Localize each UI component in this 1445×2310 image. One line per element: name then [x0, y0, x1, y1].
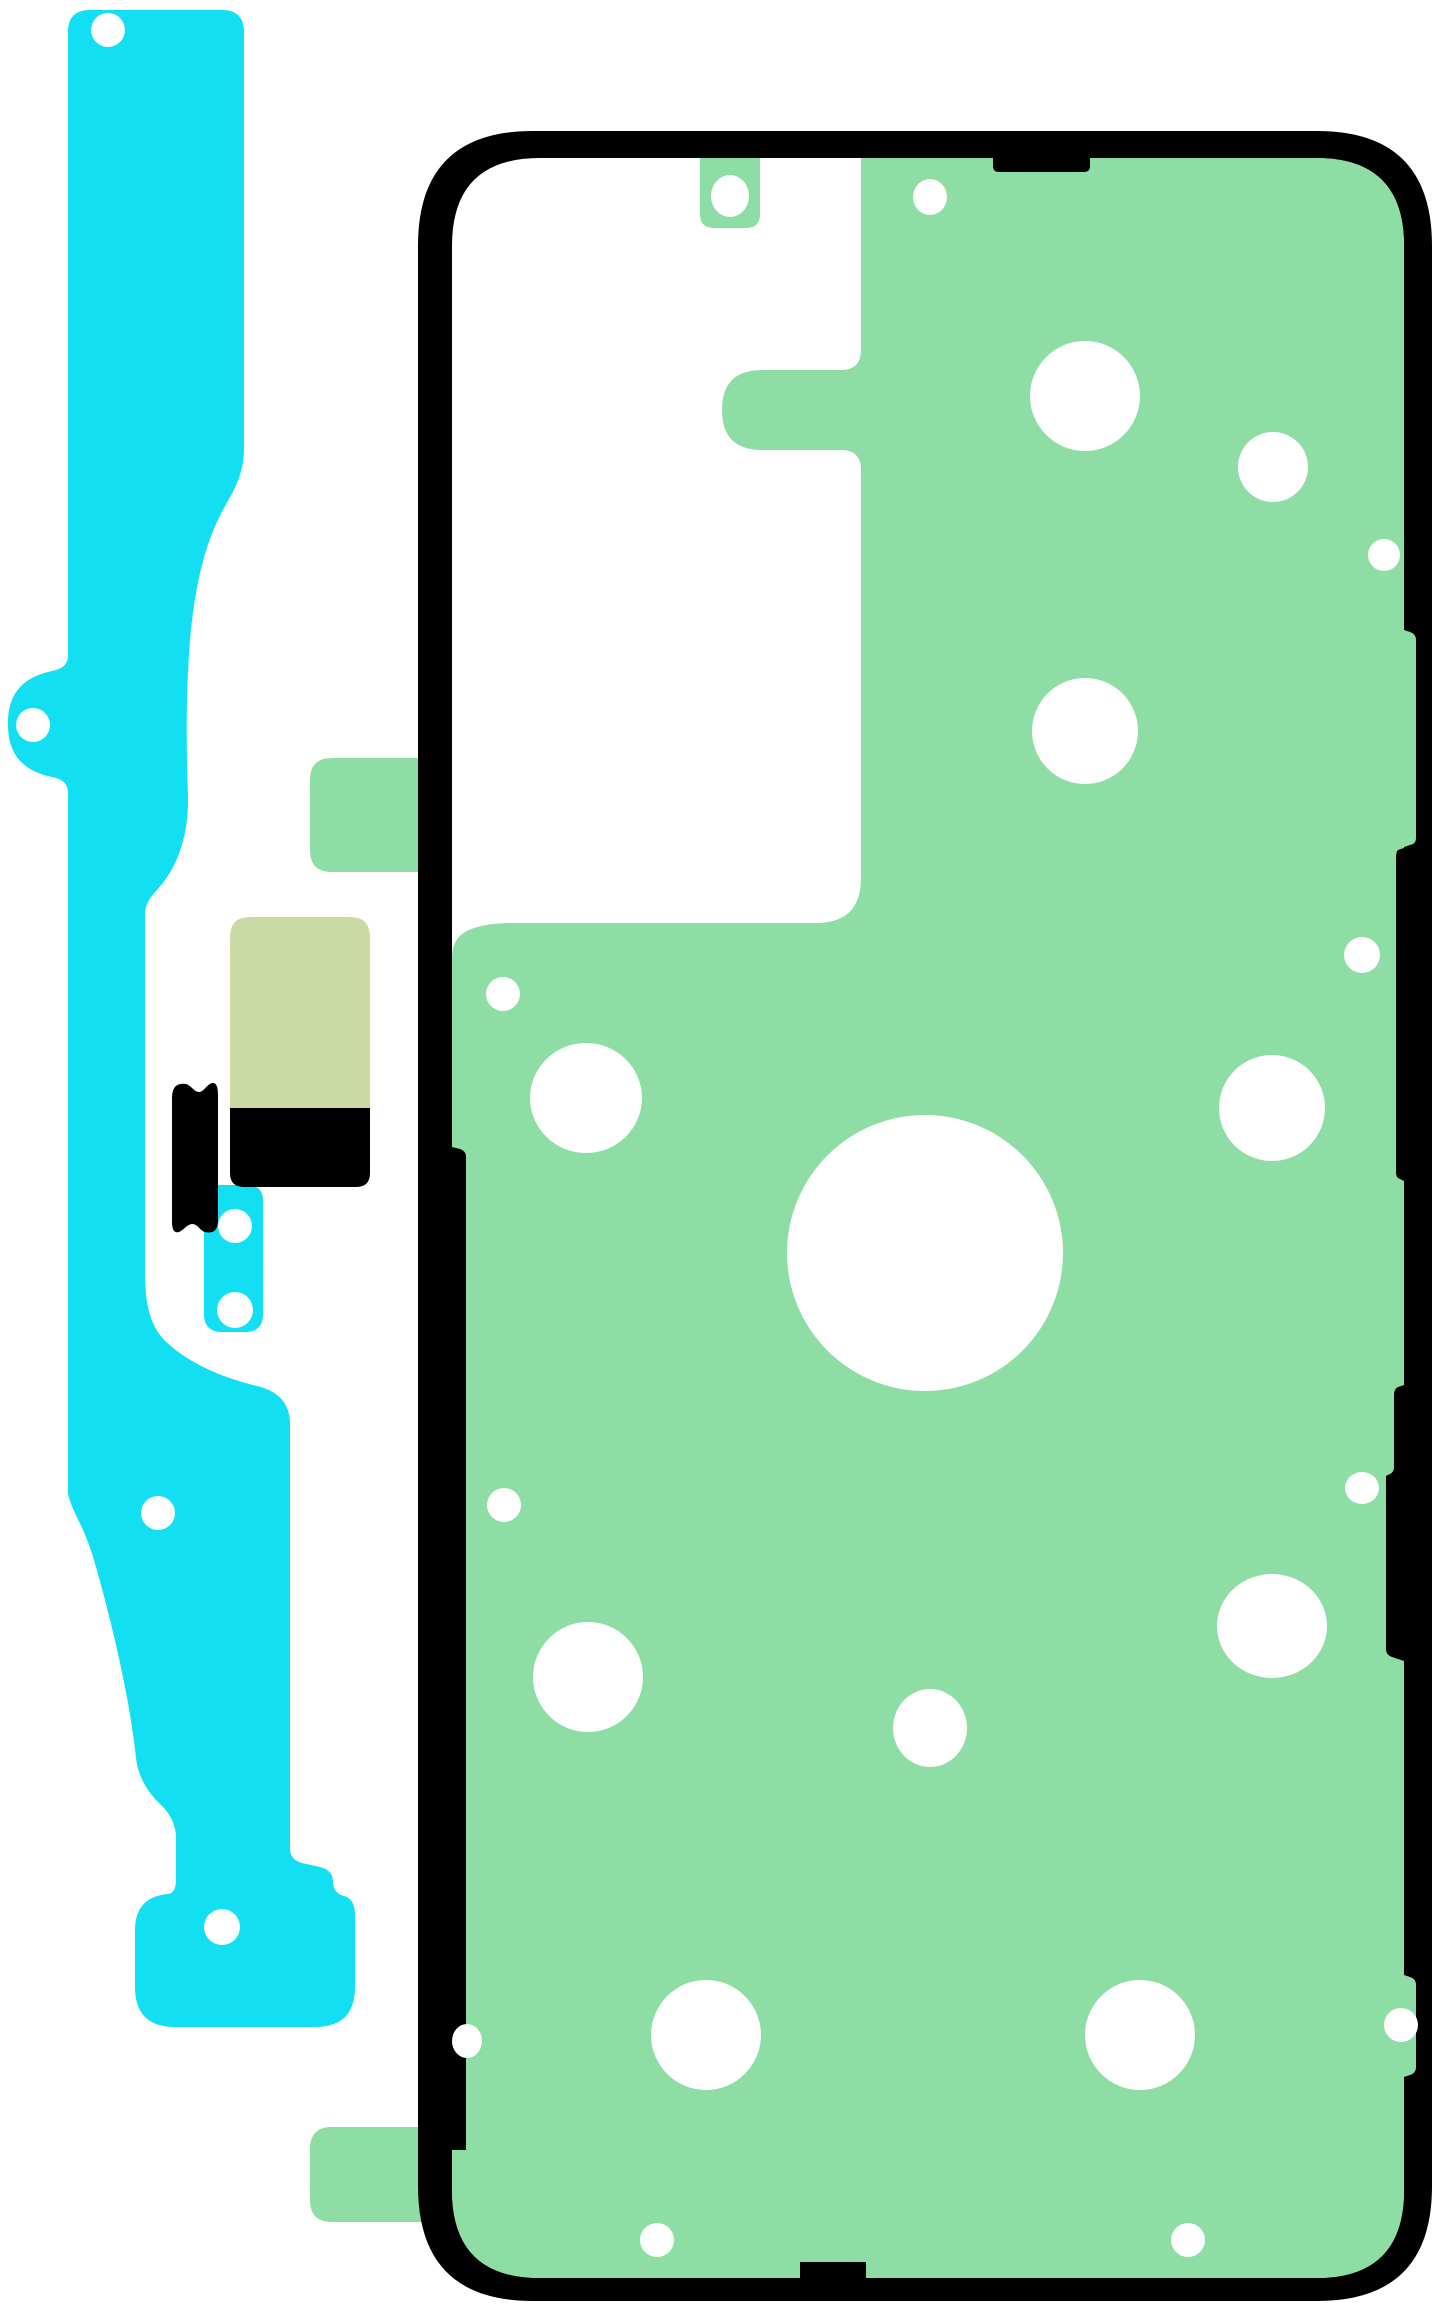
hole-strip-foot — [204, 1909, 240, 1945]
hole-sheet-18 — [640, 2223, 674, 2257]
hole-strip-top — [91, 13, 125, 47]
hole-sheet-1 — [913, 179, 947, 215]
hole-sheet-20 — [1384, 2008, 1418, 2042]
adhesive-kit-canvas — [0, 0, 1445, 2310]
frame-notch-right-a — [1396, 848, 1404, 1181]
hole-sheet-center — [787, 1115, 1063, 1391]
hole-sheet-15 — [651, 1980, 761, 2090]
hole-connector-lower — [217, 1292, 253, 1328]
black-pad — [230, 1108, 370, 1187]
hole-sheet-9 — [1219, 1055, 1325, 1161]
hole-sheet-7 — [486, 977, 520, 1011]
hole-sheet-16 — [1085, 1980, 1195, 2090]
hole-sheet-4 — [1368, 539, 1400, 571]
hole-sheet-8 — [530, 1043, 642, 1153]
adhesive-kit-illustration — [0, 0, 1445, 2310]
hole-sheet-5 — [1032, 678, 1138, 784]
hole-sheet-2 — [1030, 341, 1140, 451]
hole-sheet-3 — [1238, 432, 1308, 502]
hole-sheet-12 — [533, 1622, 643, 1732]
hole-strip-ear — [16, 708, 50, 742]
hole-sheet-13 — [893, 1689, 967, 1767]
hole-sheet-6 — [1344, 937, 1380, 973]
hole-sheet-17 — [452, 2024, 482, 2058]
hole-top-tab — [711, 175, 749, 217]
hole-strip-mid — [141, 1496, 175, 1530]
hole-connector-upper — [218, 1209, 252, 1243]
khaki-pad — [230, 917, 370, 1108]
sheet-right-bulge-upper — [1404, 630, 1416, 847]
hole-sheet-14 — [1217, 1574, 1327, 1678]
frame-notch-top — [993, 158, 1090, 172]
black-clip — [172, 1083, 218, 1233]
frame-notch-left — [452, 1147, 466, 2150]
frame-notch-bottom — [800, 2262, 866, 2278]
hole-sheet-10 — [1345, 1472, 1379, 1504]
hole-sheet-11 — [487, 1488, 521, 1522]
hole-sheet-19 — [1171, 2223, 1205, 2257]
